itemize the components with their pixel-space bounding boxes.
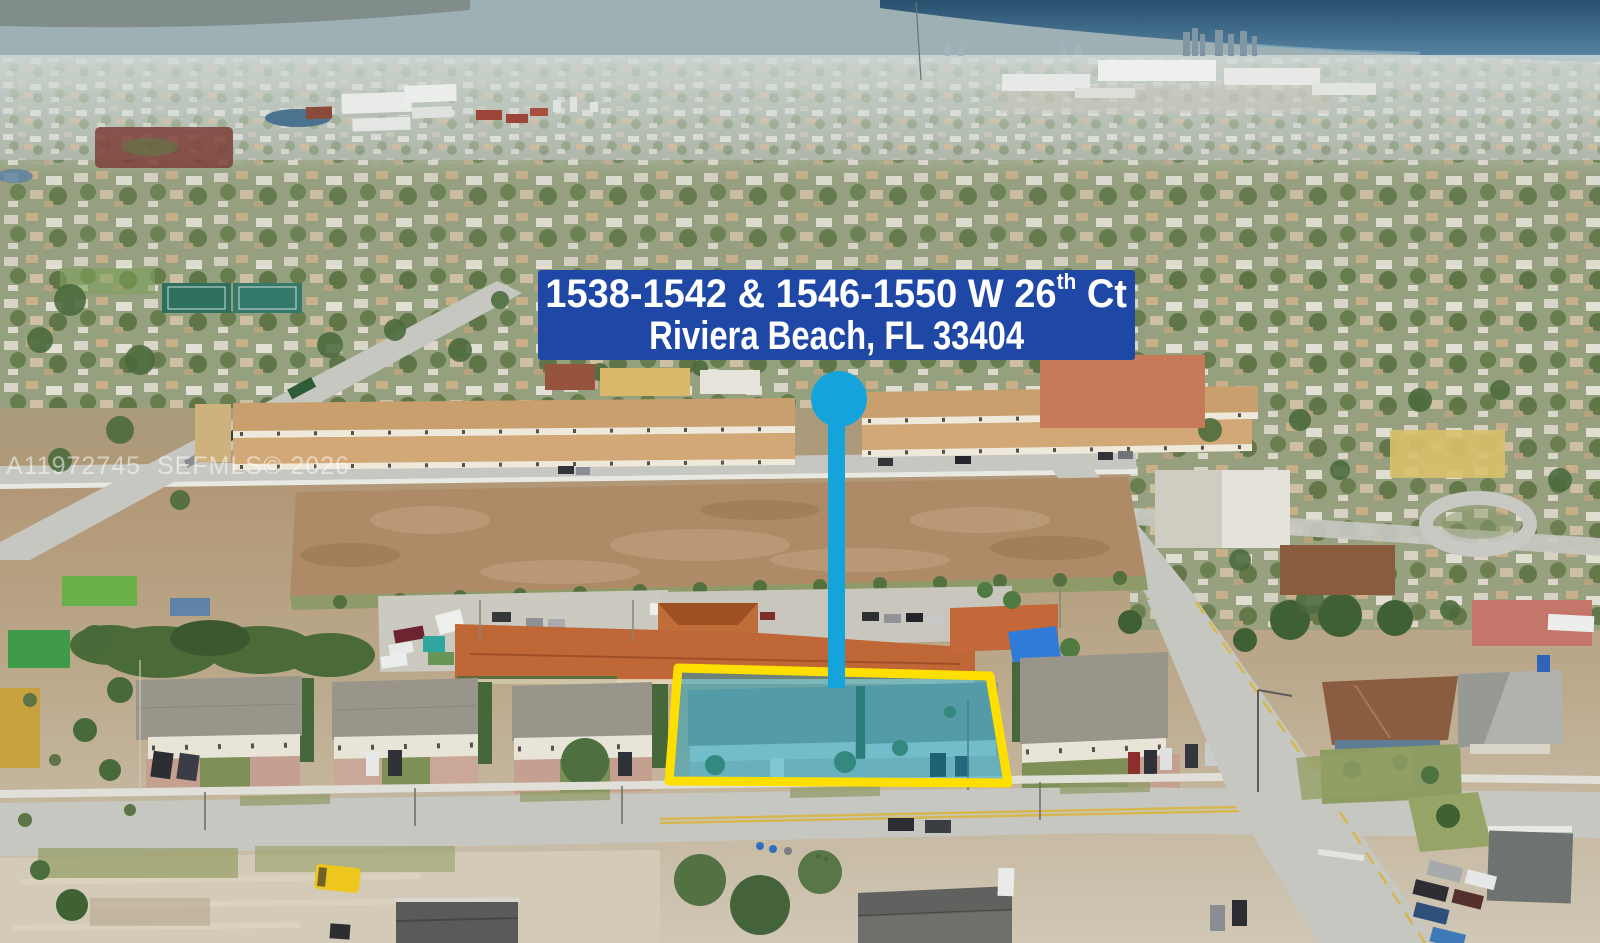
yellow-van [314, 864, 361, 894]
mls-watermark: A11972745 SEFMLS© 2026 [6, 452, 350, 481]
playground [62, 576, 137, 606]
address-banner: 1538-1542 & 1546-1550 W 26th Ct Riviera … [538, 270, 1135, 360]
teal-canopy [423, 636, 445, 652]
pin-stem [828, 399, 845, 688]
green-roof-building [8, 630, 70, 668]
address-line-2: Riviera Beach, FL 33404 [649, 315, 1024, 357]
address-line-1: 1538-1542 & 1546-1550 W 26th Ct [546, 273, 1128, 315]
palm-tree [1436, 804, 1460, 828]
pin-head [811, 371, 867, 427]
coral-building [1040, 355, 1205, 428]
ordinal-superscript: th [1057, 269, 1077, 294]
vacant-lot [290, 477, 1148, 610]
brown-roof-house [1322, 676, 1458, 745]
blue-tarp [170, 598, 210, 616]
listing-aerial-image: 1538-1542 & 1546-1550 W 26th Ct Riviera … [0, 0, 1600, 943]
